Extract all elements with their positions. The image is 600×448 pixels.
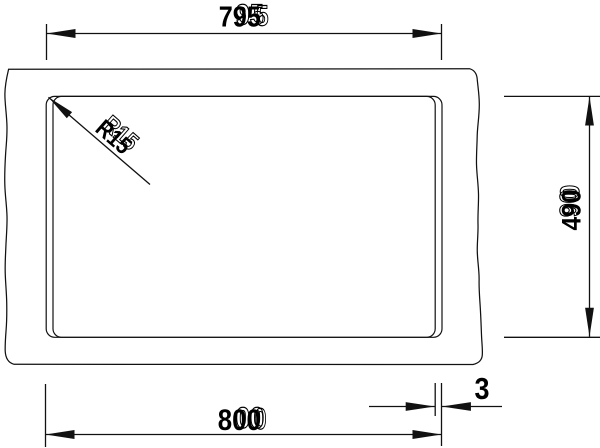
svg-text:0: 0 bbox=[255, 403, 267, 436]
svg-text:5: 5 bbox=[256, 1, 269, 33]
svg-text:0: 0 bbox=[555, 185, 585, 199]
svg-text:3: 3 bbox=[475, 371, 490, 406]
